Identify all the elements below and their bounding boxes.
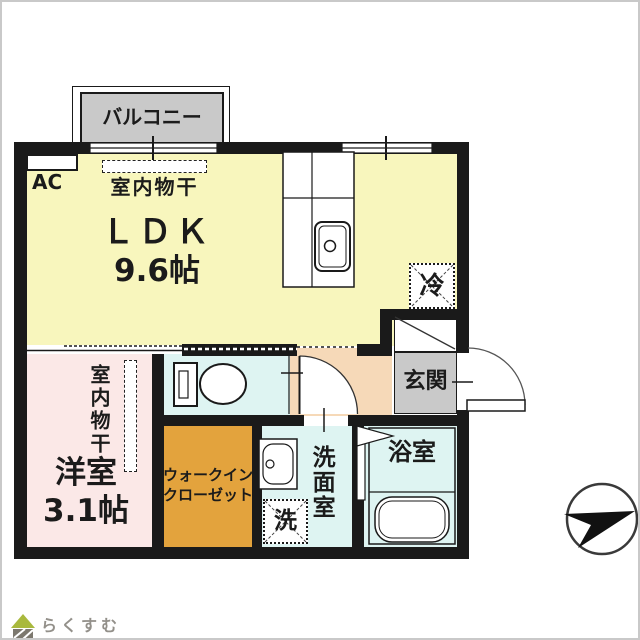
hall-sliding-track	[184, 347, 357, 349]
ac-label: AC	[32, 172, 62, 193]
shoe-cabinet-diagonal	[395, 317, 455, 349]
window-balcony	[90, 136, 217, 160]
walk-in-closet-label: ウォークイン クローゼット	[162, 465, 254, 506]
brand-logo-icon	[11, 614, 35, 639]
ldk-name: ＬＤＫ	[62, 215, 252, 250]
sliding-door-icon	[27, 346, 182, 351]
toilet-door-arc	[281, 356, 358, 414]
ldk-size: 9.6帖	[62, 255, 252, 288]
toilet-icon	[174, 363, 246, 406]
north-arrow-icon	[564, 484, 637, 554]
floor-plan: バルコニー	[0, 0, 640, 640]
brand-name: らくすむ	[41, 618, 121, 635]
refrigerator-label: 冷	[409, 273, 455, 299]
entrance-label: 玄関	[394, 370, 457, 393]
western-room-name: 洋室	[30, 457, 142, 490]
washer-label: 洗	[263, 509, 308, 533]
western-room-size: 3.1帖	[24, 495, 148, 528]
window-kitchen	[342, 136, 432, 160]
walk-in-closet-label-line2: クローゼット	[162, 485, 254, 505]
vanity-icon	[259, 439, 297, 489]
walk-in-closet-label-line1: ウォークイン	[162, 465, 254, 485]
bathroom-label: 浴室	[370, 440, 454, 465]
indoor-drying-label-ldk: 室内物干	[97, 177, 212, 198]
washroom-label: 洗面室	[309, 445, 333, 540]
front-door-arc	[467, 348, 525, 411]
kitchen-sink-icon	[315, 222, 350, 271]
balcony-label: バルコニー	[82, 107, 222, 128]
